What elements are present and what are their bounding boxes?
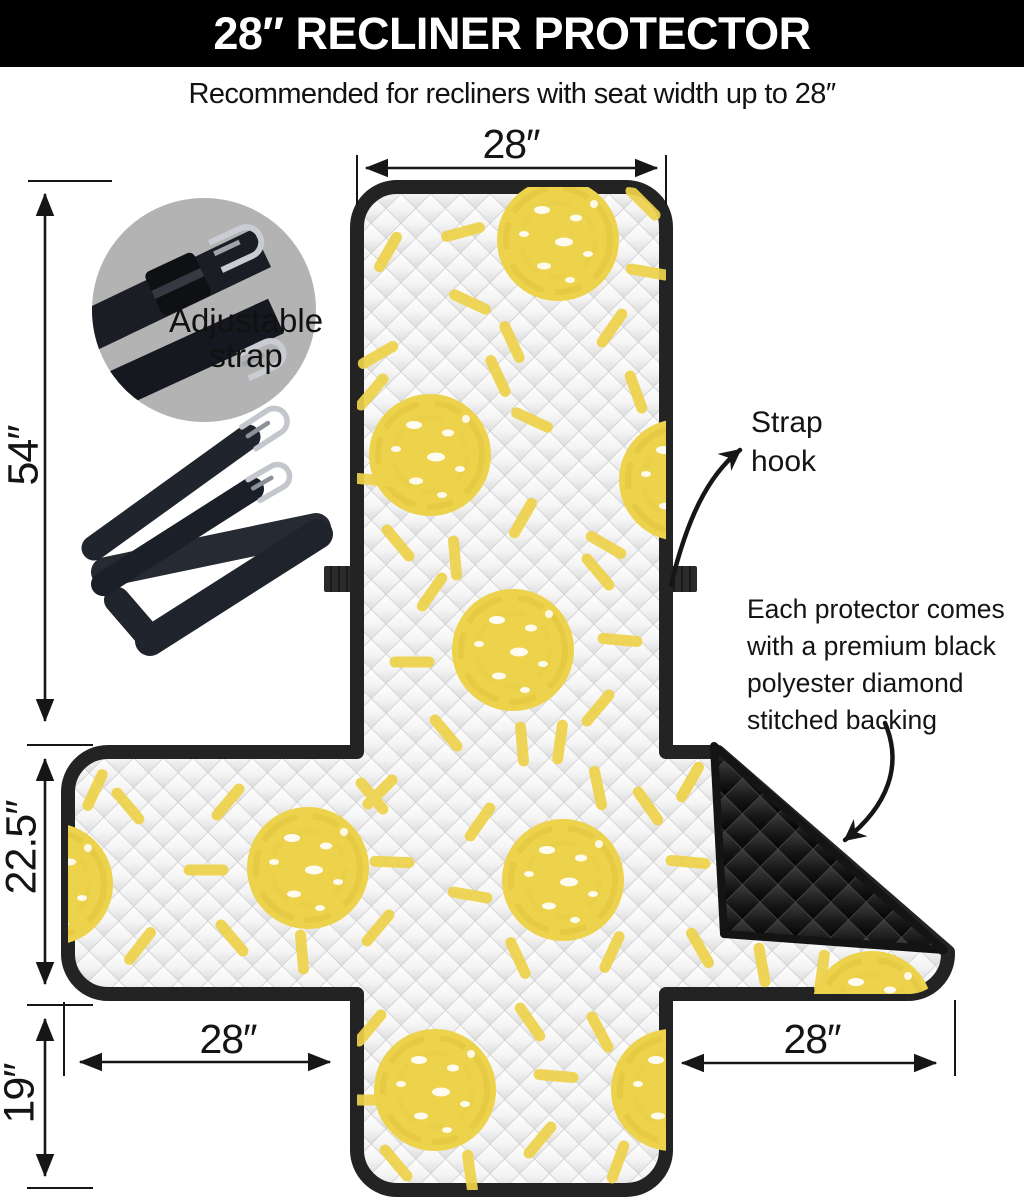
dim-label-seat-depth: 22.5″ xyxy=(0,768,47,928)
dim-label-top-width: 28″ xyxy=(411,121,611,168)
adjustable-strap-line2: strap xyxy=(150,338,342,373)
backing-note-line4: stitched backing xyxy=(747,702,1005,739)
folded-corner-backing xyxy=(714,746,944,950)
backing-note-line3: polyester diamond xyxy=(747,665,1005,702)
strap-hook-line1: Strap xyxy=(751,403,823,442)
dim-label-right-arm: 28″ xyxy=(712,1016,912,1063)
backing-note: Each protector comes with a premium blac… xyxy=(747,591,1005,739)
dim-label-front-drop: 19″ xyxy=(0,1014,45,1174)
strap-hook-label: Strap hook xyxy=(751,403,823,481)
adjustable-strap-line1: Adjustable xyxy=(150,303,342,338)
elastic-straps-photo xyxy=(94,403,318,641)
product-infographic: 28″ RECLINER PROTECTOR Recommended for r… xyxy=(0,0,1024,1200)
dim-label-total-length: 54″ xyxy=(0,376,49,536)
adjustable-strap-label: Adjustable strap xyxy=(150,303,342,373)
dim-label-left-arm: 28″ xyxy=(128,1016,328,1063)
strap-hook-arrow xyxy=(671,450,740,585)
backing-note-line1: Each protector comes xyxy=(747,591,1005,628)
strap-hook-line2: hook xyxy=(751,442,823,481)
backing-arrow xyxy=(845,723,892,840)
backing-note-line2: with a premium black xyxy=(747,628,1005,665)
